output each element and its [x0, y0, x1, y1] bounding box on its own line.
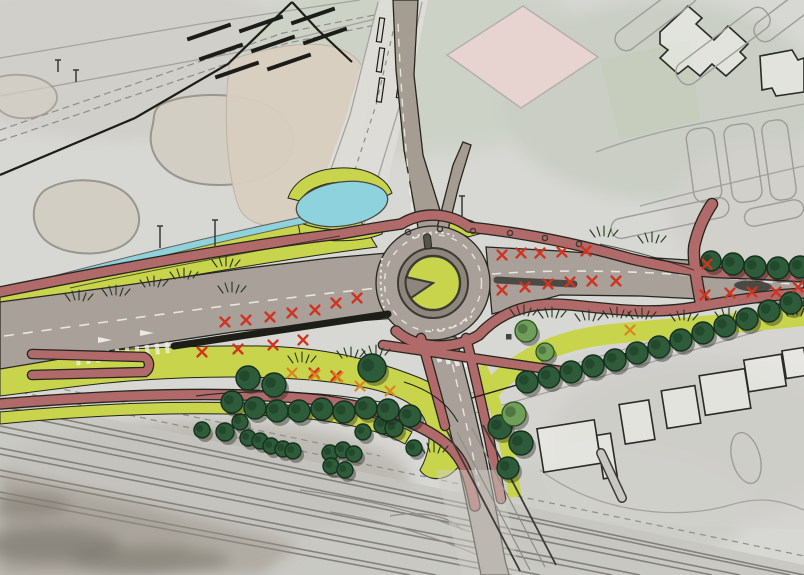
site-plan-canvas: [0, 0, 804, 575]
east-median-bar: [497, 280, 574, 284]
roundabout-plan-drawing: [0, 0, 804, 575]
splitter-island: [423, 234, 432, 250]
house-outline: [744, 354, 787, 392]
signal-box: [506, 334, 512, 340]
house-outline: [537, 420, 601, 473]
house-outline: [699, 369, 751, 416]
house-outline: [782, 347, 804, 378]
house-outline: [619, 400, 655, 444]
house-outline: [661, 386, 701, 429]
